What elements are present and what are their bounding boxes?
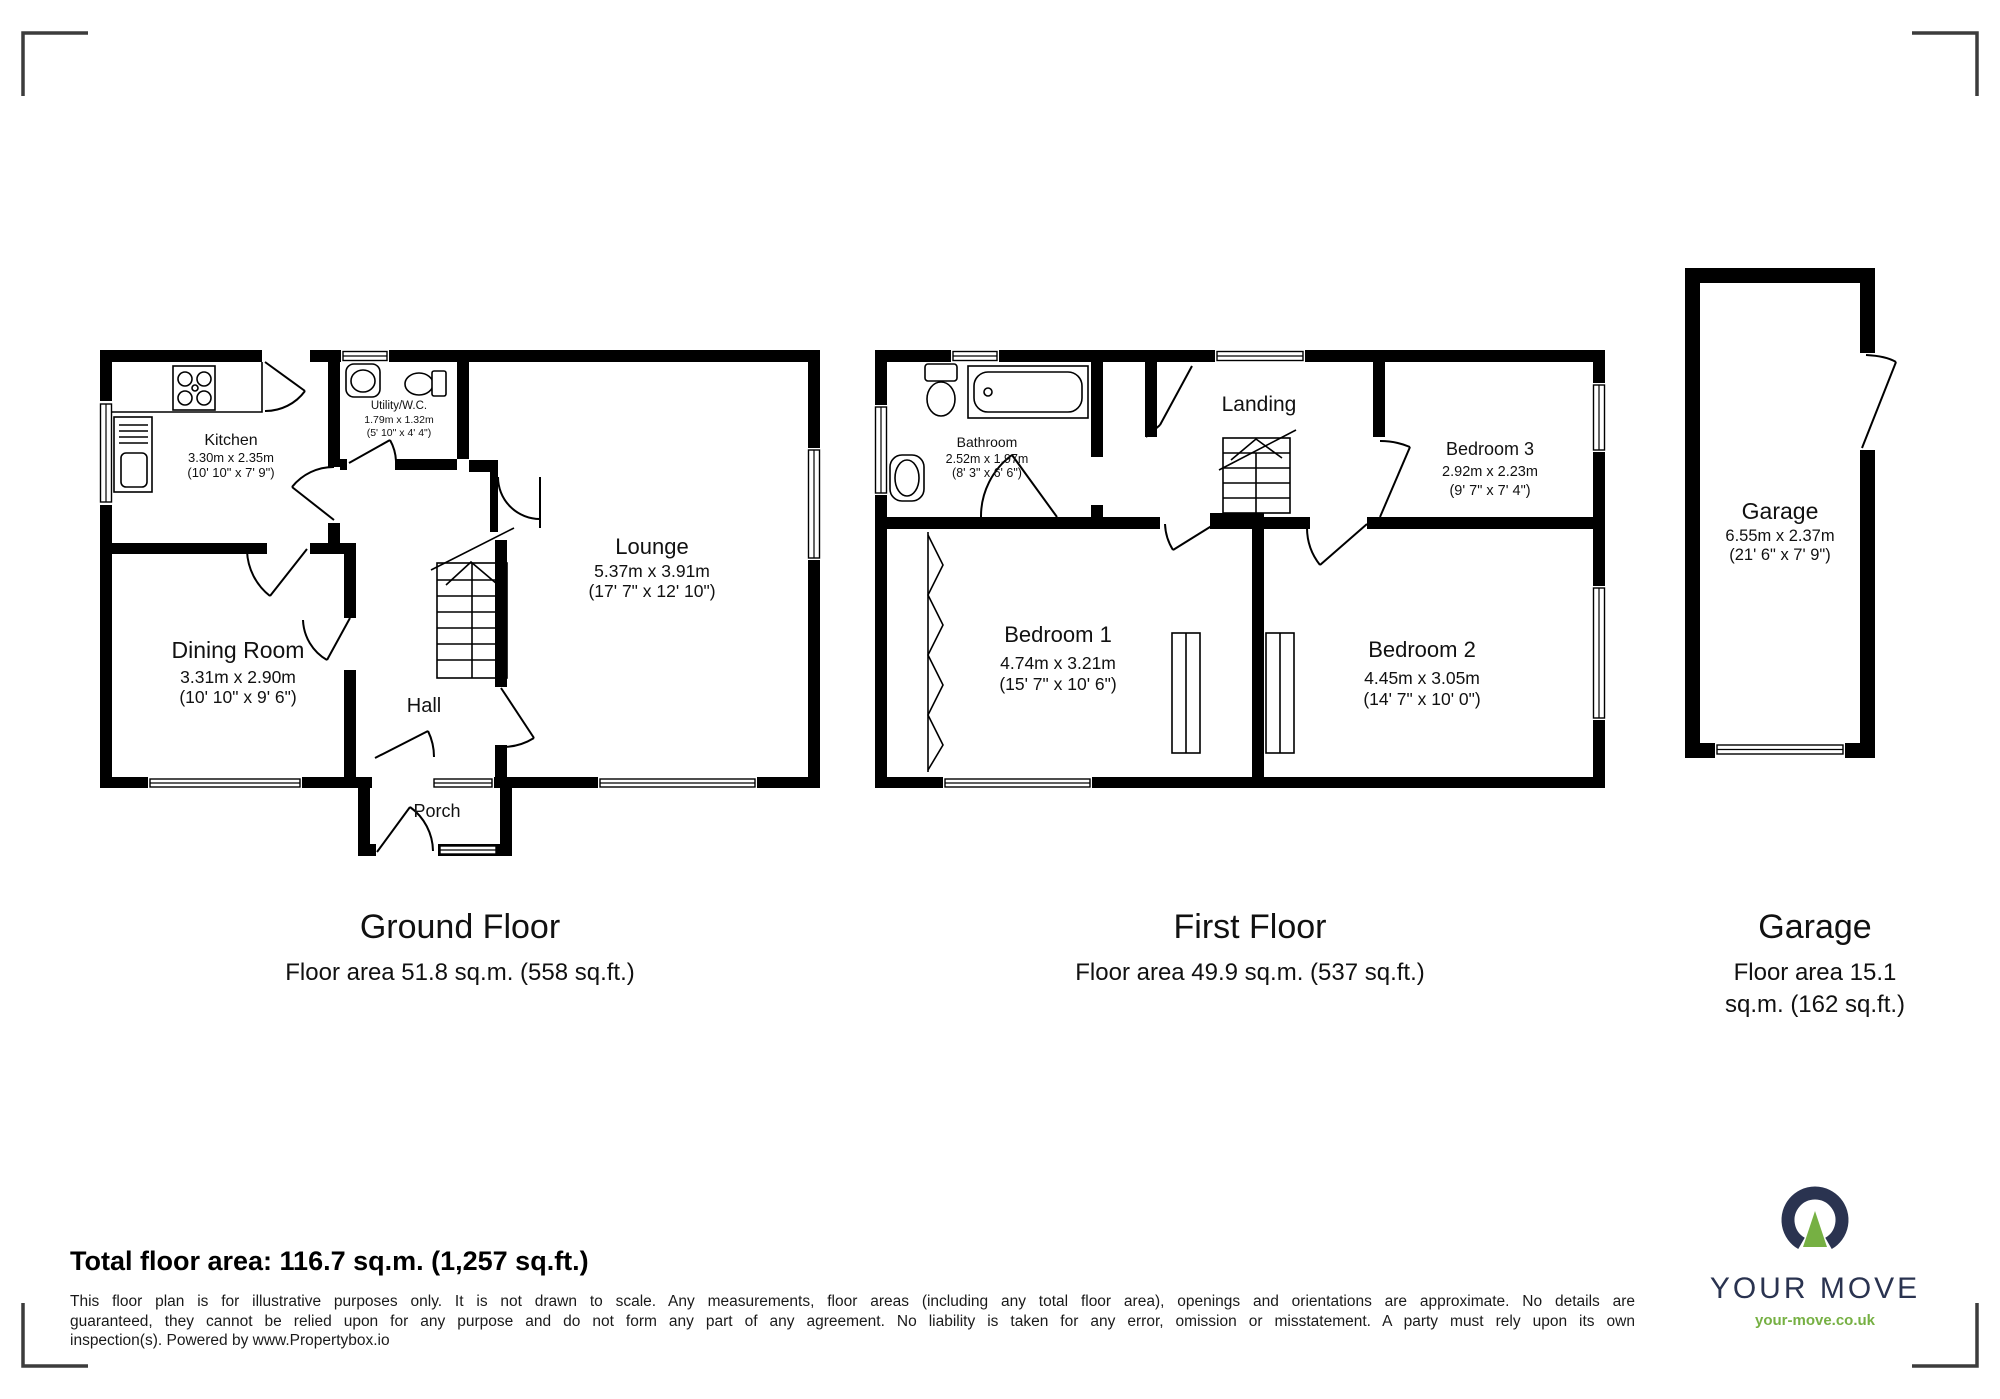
- first-floor-area: Floor area 49.9 sq.m. (537 sq.ft.): [1075, 959, 1425, 986]
- bedroom1-label: Bedroom 1: [1004, 622, 1112, 647]
- disclaimer-line-3: inspection(s). Powered by www.Propertybo…: [70, 1331, 1635, 1351]
- dining-room-imperial: (10' 10" x 9' 6"): [179, 687, 296, 707]
- lounge-label: Lounge: [615, 534, 688, 559]
- your-move-icon: [1780, 1185, 1850, 1263]
- landing-label: Landing: [1222, 393, 1297, 416]
- bedroom3-metric: 2.92m x 2.23m: [1442, 464, 1538, 480]
- kitchen-imperial: (10' 10" x 7' 9"): [187, 465, 274, 480]
- utility-basin-icon: [346, 364, 380, 397]
- ground-floor-title: Ground Floor: [360, 908, 560, 946]
- garage-area-line1: Floor area 15.1: [1734, 959, 1897, 986]
- disclaimer-line-2: guaranteed, they cannot be relied upon f…: [70, 1312, 1635, 1332]
- garage-room-imperial: (21' 6" x 7' 9"): [1729, 546, 1830, 564]
- floor-titles: Ground Floor Floor area 51.8 sq.m. (558 …: [285, 908, 1905, 1018]
- kitchen-label: Kitchen: [204, 432, 257, 449]
- bedroom1-metric: 4.74m x 3.21m: [1000, 653, 1116, 673]
- bathroom-basin-icon: [890, 455, 924, 501]
- bathroom-label: Bathroom: [957, 434, 1018, 450]
- bedroom2-imperial: (14' 7" x 10' 0"): [1363, 689, 1480, 709]
- garage-area-line2: sq.m. (162 sq.ft.): [1725, 991, 1905, 1018]
- first-floor-title: First Floor: [1174, 908, 1327, 946]
- your-move-logo: YOUR MOVE your-move.co.uk: [1690, 1185, 1940, 1329]
- utility-toilet-icon: [405, 371, 446, 396]
- bathroom-toilet-icon: [925, 364, 957, 416]
- garage-room-label: Garage: [1742, 498, 1819, 524]
- ground-floor-plan: Kitchen 3.30m x 2.35m (10' 10" x 7' 9") …: [98, 348, 822, 858]
- bedroom3-label: Bedroom 3: [1446, 439, 1534, 459]
- bathroom-metric: 2.52m x 1.97m: [946, 452, 1029, 466]
- lounge-imperial: (17' 7" x 12' 10"): [588, 581, 715, 601]
- kitchen-sink-icon: [114, 417, 152, 492]
- garage-title: Garage: [1758, 908, 1871, 946]
- bedroom1-wardrobe-zigzag: [928, 532, 943, 772]
- kitchen-metric: 3.30m x 2.35m: [188, 450, 274, 465]
- first-floor-plan: Bathroom 2.52m x 1.97m (8' 3" x 6' 6") L…: [873, 348, 1607, 790]
- bathroom-imperial: (8' 3" x 6' 6"): [952, 466, 1022, 480]
- corner-marks: [23, 33, 1977, 1366]
- porch-label: Porch: [413, 801, 460, 821]
- bedroom2-metric: 4.45m x 3.05m: [1364, 668, 1480, 688]
- dining-room-label: Dining Room: [172, 637, 305, 663]
- ground-floor-area: Floor area 51.8 sq.m. (558 sq.ft.): [285, 959, 635, 986]
- bedroom3-imperial: (9' 7" x 7' 4"): [1449, 483, 1530, 499]
- bathtub-icon: [968, 366, 1088, 418]
- garage-plan: Garage 6.55m x 2.37m (21' 6" x 7' 9"): [1685, 268, 1896, 760]
- first-floor-stairs: [1219, 430, 1296, 513]
- disclaimer-line-1: This floor plan is for illustrative purp…: [70, 1292, 1635, 1312]
- your-move-wordmark: YOUR MOVE: [1690, 1272, 1940, 1306]
- utility-metric: 1.79m x 1.32m: [364, 414, 434, 426]
- total-floor-area: Total floor area: 116.7 sq.m. (1,257 sq.…: [70, 1246, 589, 1277]
- dining-room-metric: 3.31m x 2.90m: [180, 667, 296, 687]
- disclaimer-text: This floor plan is for illustrative purp…: [70, 1292, 1635, 1351]
- garage-room-metric: 6.55m x 2.37m: [1725, 527, 1834, 545]
- bedroom1-imperial: (15' 7" x 10' 6"): [999, 674, 1116, 694]
- lounge-metric: 5.37m x 3.91m: [594, 561, 710, 581]
- built-in-wardrobes: [1172, 633, 1294, 753]
- floorplan-page: Kitchen 3.30m x 2.35m (10' 10" x 7' 9") …: [0, 0, 2000, 1399]
- your-move-url: your-move.co.uk: [1690, 1312, 1940, 1329]
- hall-label: Hall: [407, 695, 441, 717]
- utility-imperial: (5' 10" x 4' 4"): [367, 427, 432, 439]
- utility-label: Utility/W.C.: [371, 400, 427, 412]
- hob-icon: [173, 366, 215, 410]
- bedroom2-label: Bedroom 2: [1368, 637, 1476, 662]
